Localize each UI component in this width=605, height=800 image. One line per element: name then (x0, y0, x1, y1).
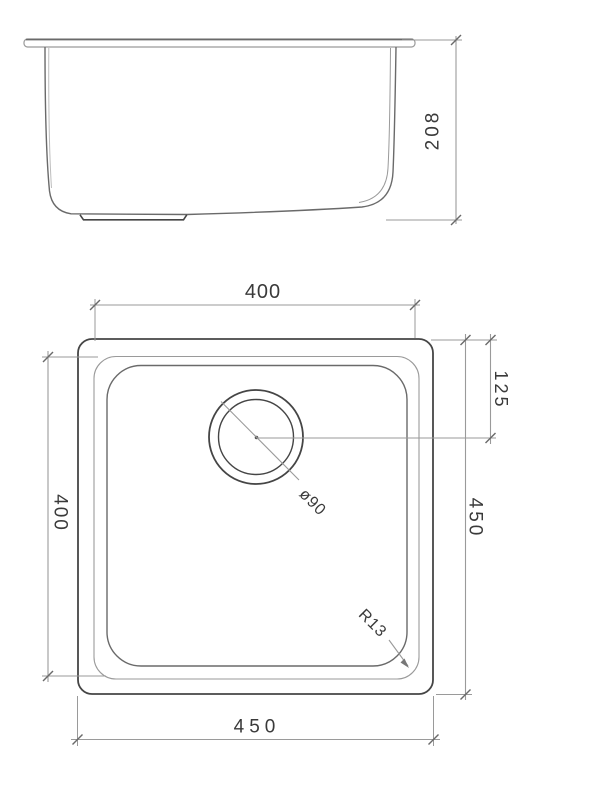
dim-label-overall-width: 450 (234, 718, 281, 737)
dim-label-overall-length: 450 (466, 498, 485, 539)
corner-radius-arrowhead (401, 659, 410, 669)
dim-label-bowl-length: 400 (51, 494, 70, 532)
side-body-left-outline (45, 47, 187, 215)
side-drain-stub (80, 215, 187, 220)
dim-label-depth: 208 (424, 110, 443, 151)
technical-drawing-canvas: 208 400 400 450 125 450 ø90 R13 (0, 0, 605, 800)
plan-view (42, 299, 497, 746)
side-inner-wall-left (49, 48, 52, 188)
dim-label-drain-offset: 125 (492, 370, 510, 409)
side-inner-wall-right (359, 48, 391, 203)
side-view (24, 35, 462, 225)
dim-bowl-width (90, 299, 420, 341)
plan-outer-rim (78, 339, 433, 694)
side-body-right-outline (187, 47, 396, 215)
drain-diameter-leader (221, 402, 299, 481)
dim-label-bowl-width: 400 (245, 282, 281, 302)
drawing-linework (0, 0, 605, 800)
